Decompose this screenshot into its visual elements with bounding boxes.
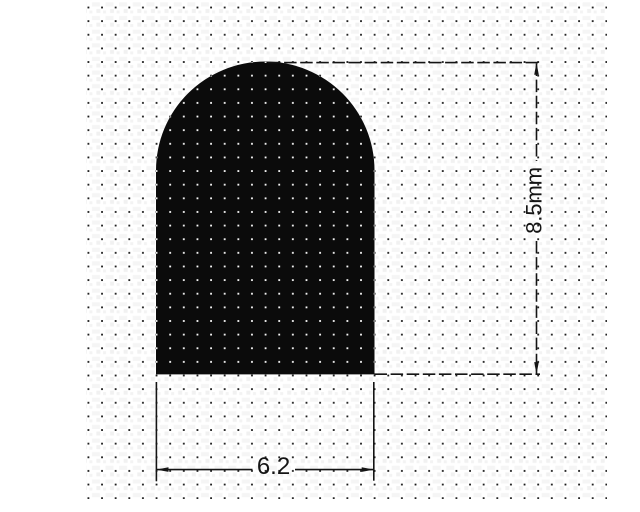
- svg-text:6.2: 6.2: [257, 453, 290, 480]
- svg-text:8.5mm: 8.5mm: [521, 167, 546, 234]
